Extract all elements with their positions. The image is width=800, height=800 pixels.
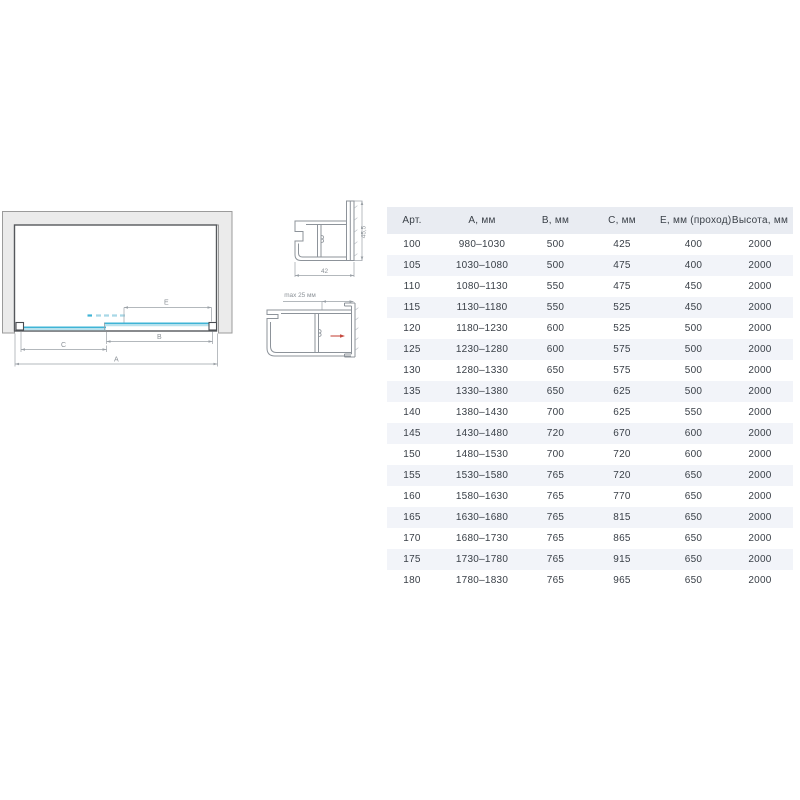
dim-label-b: В: [157, 334, 162, 341]
table-cell: 765: [527, 470, 584, 481]
wall-channel: [345, 303, 356, 357]
table-row: 1151130–11805505254502000: [387, 297, 793, 318]
table-cell: 720: [584, 470, 660, 481]
table-row: 1401380–14307006255502000: [387, 402, 793, 423]
table-cell: 500: [660, 365, 727, 376]
table-cell: 1680–1730: [437, 533, 527, 544]
table-cell: 2000: [727, 533, 793, 544]
dim-label-a: А: [114, 357, 119, 364]
table-cell: 625: [584, 407, 660, 418]
table-row: 1251230–12806005755002000: [387, 339, 793, 360]
table-cell: 700: [527, 407, 584, 418]
table-cell: 650: [660, 512, 727, 523]
adjustment-arrow-head: [340, 334, 345, 338]
table-cell: 145: [387, 428, 437, 439]
table-cell: 2000: [727, 575, 793, 586]
table-row: 1551530–15807657206502000: [387, 465, 793, 486]
table-cell: 2000: [727, 281, 793, 292]
arrow: [361, 257, 364, 261]
table-cell: 120: [387, 323, 437, 334]
table-cell: 1730–1780: [437, 554, 527, 565]
table-cell: 765: [527, 554, 584, 565]
table-row: 1701680–17307658656502000: [387, 528, 793, 549]
profile-body-outline: [267, 310, 351, 356]
col-header-height: Высота, мм: [727, 215, 793, 226]
table-cell: 550: [527, 281, 584, 292]
table-cell: 425: [584, 239, 660, 250]
table-cell: 170: [387, 533, 437, 544]
table-cell: 2000: [727, 428, 793, 439]
wall-profile-section: 45,5 42: [283, 194, 375, 282]
table-cell: 1580–1630: [437, 491, 527, 502]
arrow: [322, 300, 326, 302]
table-cell: 575: [584, 365, 660, 376]
table-cell: 650: [660, 554, 727, 565]
table-row: 1051030–10805004754002000: [387, 255, 793, 276]
table-cell: 770: [584, 491, 660, 502]
table-row: 1751730–17807659156502000: [387, 549, 793, 570]
table-cell: 140: [387, 407, 437, 418]
table-row: 1501480–15307007206002000: [387, 444, 793, 465]
arrow: [295, 274, 299, 277]
wall-hatching: [355, 308, 358, 350]
table-cell: 650: [660, 533, 727, 544]
table-cell: 625: [584, 386, 660, 397]
table-cell: 125: [387, 344, 437, 355]
col-header-c: С, мм: [584, 215, 660, 226]
arrow: [107, 340, 111, 343]
table-cell: 720: [527, 428, 584, 439]
table-cell: 130: [387, 365, 437, 376]
table-cell: 1780–1830: [437, 575, 527, 586]
table-cell: 815: [584, 512, 660, 523]
table-cell: 600: [660, 428, 727, 439]
table-cell: 2000: [727, 554, 793, 565]
table-cell: 2000: [727, 386, 793, 397]
table-cell: 450: [660, 302, 727, 313]
wall-hatching: [354, 206, 357, 256]
adjustment-profile-section: max 25 мм: [258, 286, 372, 364]
table-cell: 2000: [727, 323, 793, 334]
table-cell: 2000: [727, 344, 793, 355]
table-cell: 600: [660, 449, 727, 460]
arrow: [15, 363, 19, 366]
col-header-art: Арт.: [387, 215, 437, 226]
table-cell: 115: [387, 302, 437, 313]
table-cell: 965: [584, 575, 660, 586]
table-cell: 450: [660, 281, 727, 292]
table-cell: 650: [660, 575, 727, 586]
table-cell: 2000: [727, 365, 793, 376]
table-cell: 1480–1530: [437, 449, 527, 460]
spec-table: Арт. А, мм В, мм С, мм Е, мм (проход) Вы…: [387, 207, 793, 591]
wall-profile-right: [209, 323, 217, 331]
table-row: 1651630–16807658156502000: [387, 507, 793, 528]
table-cell: 1080–1130: [437, 281, 527, 292]
dimension-adjust: [283, 302, 354, 310]
dim-label-height: 45,5: [361, 225, 368, 238]
table-cell: 650: [527, 365, 584, 376]
table-cell: 525: [584, 323, 660, 334]
table-cell: 400: [660, 260, 727, 271]
arrow: [21, 348, 25, 351]
table-cell: 475: [584, 260, 660, 271]
table-cell: 650: [660, 470, 727, 481]
table-cell: 110: [387, 281, 437, 292]
table-body: 100980–103050042540020001051030–10805004…: [387, 234, 793, 591]
table-cell: 1380–1430: [437, 407, 527, 418]
table-cell: 600: [527, 344, 584, 355]
table-cell: 650: [527, 386, 584, 397]
table-cell: 575: [584, 344, 660, 355]
table-cell: 500: [660, 323, 727, 334]
table-cell: 980–1030: [437, 239, 527, 250]
table-cell: 1330–1380: [437, 386, 527, 397]
table-cell: 720: [584, 449, 660, 460]
table-cell: 2000: [727, 302, 793, 313]
table-cell: 500: [527, 260, 584, 271]
table-cell: 2000: [727, 449, 793, 460]
table-cell: 500: [660, 344, 727, 355]
table-cell: 155: [387, 470, 437, 481]
arrow: [214, 363, 218, 366]
table-row: 1351330–13806506255002000: [387, 381, 793, 402]
table-row: 1201180–12306005255002000: [387, 318, 793, 339]
table-cell: 1280–1330: [437, 365, 527, 376]
table-cell: 2000: [727, 407, 793, 418]
table-cell: 2000: [727, 491, 793, 502]
table-row: 1801780–18307659656502000: [387, 570, 793, 591]
table-cell: 915: [584, 554, 660, 565]
dim-label-e: Е: [164, 300, 169, 307]
profile-body-inner: [299, 225, 347, 258]
table-cell: 1230–1280: [437, 344, 527, 355]
table-cell: 180: [387, 575, 437, 586]
table-cell: 765: [527, 491, 584, 502]
table-cell: 500: [660, 386, 727, 397]
table-cell: 865: [584, 533, 660, 544]
table-cell: 475: [584, 281, 660, 292]
table-cell: 525: [584, 302, 660, 313]
col-header-a: А, мм: [437, 215, 527, 226]
arrow: [361, 201, 364, 205]
table-cell: 160: [387, 491, 437, 502]
table-cell: 765: [527, 575, 584, 586]
arrow: [350, 300, 354, 302]
shower-enclosure-plan-diagram: Е В С А: [0, 202, 240, 372]
col-header-b: В, мм: [527, 215, 584, 226]
dim-label-width: 42: [321, 268, 329, 275]
table-cell: 2000: [727, 260, 793, 271]
wall-profile-left: [16, 323, 24, 331]
table-cell: 165: [387, 512, 437, 523]
table-cell: 550: [660, 407, 727, 418]
table-cell: 550: [527, 302, 584, 313]
arrow: [103, 348, 107, 351]
table-cell: 1430–1480: [437, 428, 527, 439]
col-header-e: Е, мм (проход): [660, 215, 727, 226]
table-cell: 100: [387, 239, 437, 250]
table-cell: 500: [527, 239, 584, 250]
table-cell: 1030–1080: [437, 260, 527, 271]
table-cell: 175: [387, 554, 437, 565]
dim-label-c: С: [61, 342, 66, 349]
table-cell: 135: [387, 386, 437, 397]
arrow: [209, 340, 213, 343]
table-cell: 650: [660, 491, 727, 502]
table-header-row: Арт. А, мм В, мм С, мм Е, мм (проход) Вы…: [387, 207, 793, 234]
table-cell: 600: [527, 323, 584, 334]
table-cell: 1530–1580: [437, 470, 527, 481]
table-cell: 765: [527, 533, 584, 544]
profile-body-inner: [271, 314, 352, 353]
table-row: 1451430–14807206706002000: [387, 423, 793, 444]
table-row: 100980–10305004254002000: [387, 234, 793, 255]
table-cell: 400: [660, 239, 727, 250]
table-row: 1601580–16307657706502000: [387, 486, 793, 507]
table-cell: 1130–1180: [437, 302, 527, 313]
table-row: 1101080–11305504754502000: [387, 276, 793, 297]
table-cell: 700: [527, 449, 584, 460]
dim-label-adjust: max 25 мм: [284, 292, 316, 299]
table-cell: 2000: [727, 512, 793, 523]
table-cell: 1180–1230: [437, 323, 527, 334]
table-row: 1301280–13306505755002000: [387, 360, 793, 381]
table-cell: 765: [527, 512, 584, 523]
arrow: [350, 274, 354, 277]
table-cell: 2000: [727, 239, 793, 250]
table-cell: 1630–1680: [437, 512, 527, 523]
table-cell: 2000: [727, 470, 793, 481]
table-cell: 670: [584, 428, 660, 439]
table-cell: 105: [387, 260, 437, 271]
table-cell: 150: [387, 449, 437, 460]
